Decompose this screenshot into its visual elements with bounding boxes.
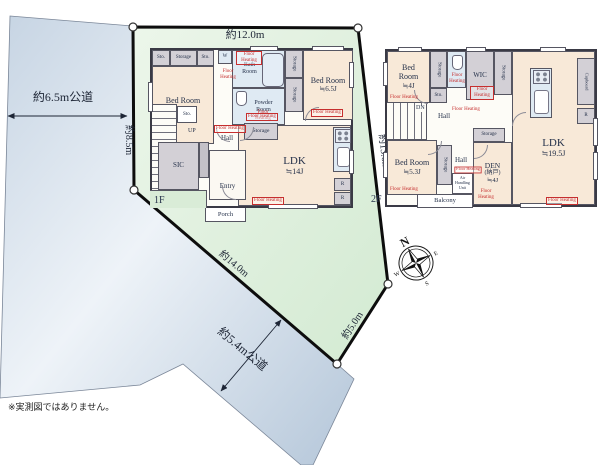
floor-heating-label: Floor Heating bbox=[236, 51, 262, 65]
window bbox=[593, 118, 598, 146]
floor-label-1f-patch: 1F bbox=[150, 190, 207, 208]
room-cupboard: Cupboard bbox=[577, 58, 595, 105]
plot-vertex bbox=[129, 23, 137, 31]
hall-label-2f-lower: Hall bbox=[455, 157, 467, 165]
floor-heating-label: Floor Heating bbox=[246, 113, 278, 121]
window bbox=[349, 150, 354, 174]
refrigerator-box-2-1f: R bbox=[334, 192, 351, 205]
room-storage-v2-2f: Storage bbox=[494, 51, 512, 95]
room-storage-sto-a-2f: Sto. bbox=[430, 88, 447, 103]
floor-heating-label: Floor Heating bbox=[452, 107, 480, 113]
window bbox=[312, 46, 344, 51]
floor-heating-label: Floor Heating bbox=[252, 197, 284, 205]
refrigerator-box-1f: R bbox=[334, 178, 351, 191]
floor-label-2f: 2F bbox=[371, 194, 382, 205]
washer-box-1f: W bbox=[218, 50, 232, 64]
room-storage-sto-a-1f: Sto. bbox=[152, 50, 170, 66]
window bbox=[268, 204, 318, 209]
floor-label-1f: 1F bbox=[154, 195, 165, 206]
floor-heating-label: Floor Heating bbox=[311, 109, 343, 117]
room-storage-mid-2f: Storage bbox=[473, 128, 505, 142]
window bbox=[466, 47, 486, 52]
balcony: Balcony bbox=[417, 194, 473, 208]
hall-label-2f-upper: Hall bbox=[438, 113, 450, 121]
dim-left: 約8.5m bbox=[123, 125, 136, 155]
up-label: UP bbox=[188, 128, 196, 135]
porch: Porch bbox=[205, 208, 246, 222]
stove-icon bbox=[335, 129, 351, 143]
bathtub-icon bbox=[262, 53, 284, 87]
room-storage-v2-1f: Storage bbox=[285, 78, 303, 112]
plot-vertex bbox=[354, 24, 362, 32]
plot-vertex bbox=[384, 280, 392, 288]
floor-heating-label: Floor Heating bbox=[470, 86, 494, 100]
room-sic: SIC bbox=[158, 142, 199, 190]
window bbox=[349, 62, 354, 88]
toilet-icon bbox=[452, 55, 463, 70]
window bbox=[148, 82, 153, 112]
window bbox=[540, 47, 566, 52]
room-storage-v3-2f: Storage bbox=[437, 145, 452, 185]
room-storage-sto-b-1f: Sto. bbox=[197, 50, 214, 66]
plot-vertex bbox=[333, 360, 341, 368]
compass-w: W bbox=[393, 271, 401, 279]
floor-heating-label: Floor Heating bbox=[215, 69, 241, 81]
air-handling-unit-box: Air Handling Unit bbox=[452, 173, 473, 194]
window bbox=[383, 62, 388, 86]
kitchen-sink-icon bbox=[534, 90, 549, 114]
floor-heating-label: Floor Heating bbox=[390, 187, 418, 193]
window bbox=[383, 152, 388, 178]
plot-vertex bbox=[130, 186, 138, 194]
floor-heating-label: Floor Heating bbox=[449, 73, 465, 85]
room-storage-sto-c-1f: Sto. bbox=[177, 106, 197, 123]
compass-s: S bbox=[424, 281, 430, 288]
shoe-box-strip bbox=[199, 142, 209, 178]
room-storage-v1-2f: Storage bbox=[430, 51, 447, 88]
room-storage-v1-1f: Storage bbox=[285, 50, 303, 78]
room-storage-a-1f: Storage bbox=[170, 50, 197, 66]
window bbox=[398, 47, 422, 52]
dn-label: DN bbox=[415, 105, 426, 112]
floorplan-page: 約12.0m 約8.5m 約13.6m 約14.0m 約5.0m 約6.5m公道… bbox=[0, 0, 600, 465]
floor-heating-label: Floor Heating bbox=[214, 125, 246, 133]
toilet-icon bbox=[236, 91, 247, 106]
stove-icon bbox=[533, 70, 550, 84]
floor-heating-label: Floor Heating bbox=[546, 197, 578, 205]
disclaimer-note: ※実測図ではありません。 bbox=[8, 400, 114, 413]
floor-heating-label: Floor Heating bbox=[390, 95, 418, 101]
road-left-label: 約6.5m公道 bbox=[33, 89, 93, 104]
compass-e: E bbox=[433, 250, 439, 257]
dim-top: 約12.0m bbox=[226, 27, 265, 41]
floor-heating-label: Floor Heating bbox=[476, 189, 496, 201]
window bbox=[593, 152, 598, 180]
floor-heating-label: Floor Heating bbox=[454, 167, 481, 174]
